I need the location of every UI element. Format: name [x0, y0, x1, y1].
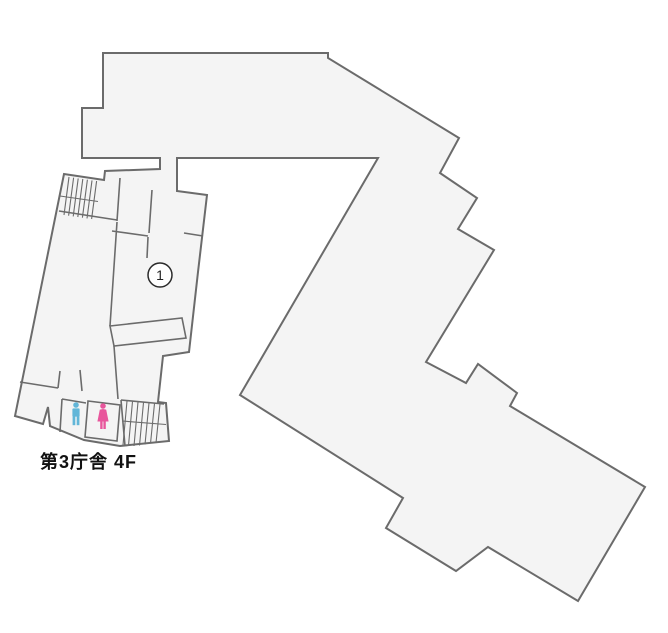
- room-marker-1-label: 1: [156, 267, 164, 283]
- floor-label: 第3庁舎 4F: [40, 448, 137, 474]
- floorplan-map: 1: [0, 0, 668, 633]
- room-marker-1[interactable]: 1: [148, 263, 172, 287]
